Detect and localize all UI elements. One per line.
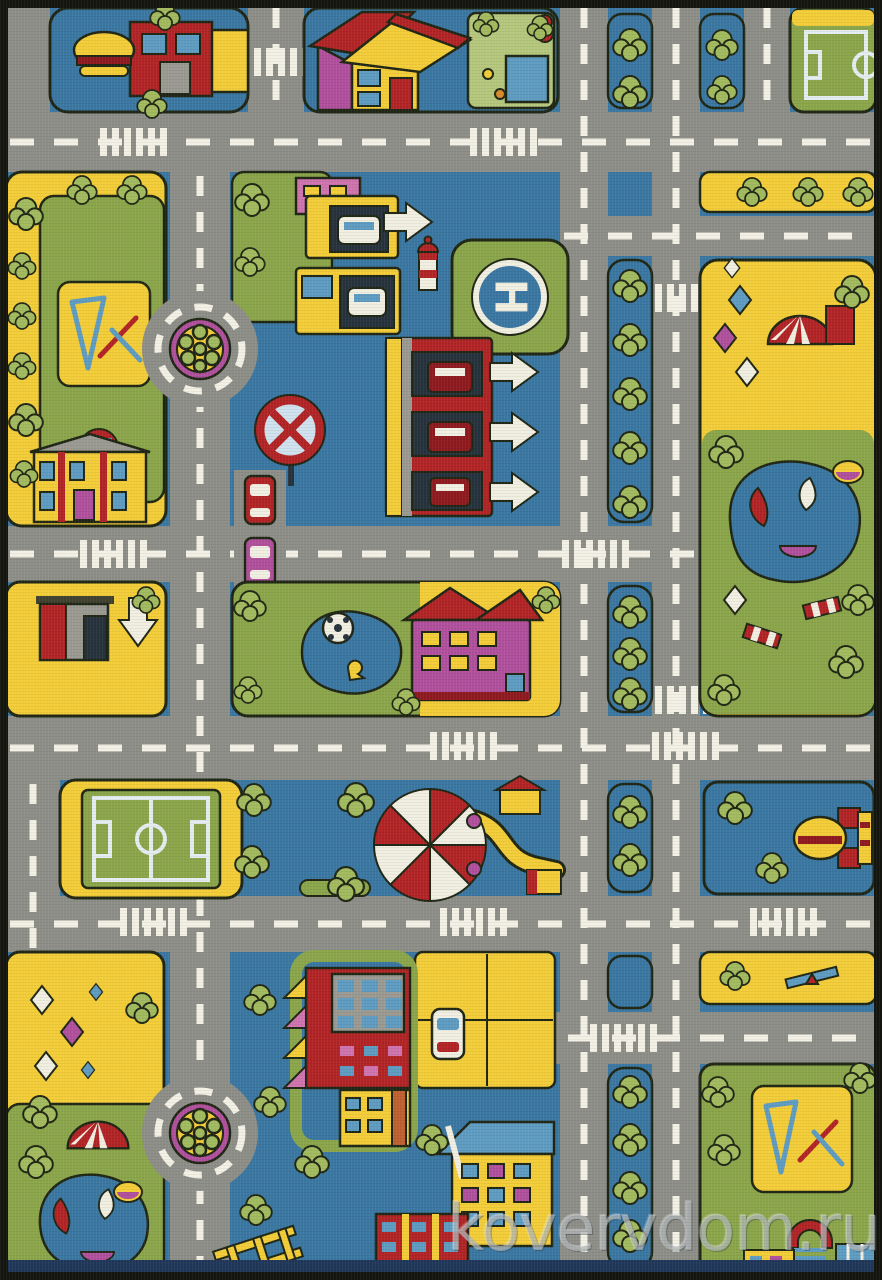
burger-sign (74, 32, 134, 76)
play-rug-illustration: H (0, 0, 882, 1280)
parked-car (432, 1009, 464, 1059)
shop-buildings (296, 178, 400, 334)
kindergarten-block (232, 582, 560, 716)
chicken (495, 89, 505, 99)
sailboat-pond-right (730, 461, 863, 582)
helipad-letter: H (485, 279, 536, 316)
rug-photo: H (0, 0, 882, 1280)
soccer-field-left (60, 780, 242, 898)
lighthouse (418, 237, 438, 291)
red-awning-building (284, 968, 410, 1088)
roundabout-bottom (142, 1075, 258, 1191)
swing-playground-right (752, 1086, 852, 1192)
soccer-field-top-right (790, 8, 878, 112)
house-with-garden (304, 8, 558, 112)
watermark: kovervdom.ru (447, 1192, 880, 1266)
swing-playground (58, 282, 150, 386)
garden-pond (506, 56, 548, 102)
sailboat-pond-bottom-left (40, 1175, 148, 1272)
yellow-lower-building (340, 1090, 410, 1146)
chicken (483, 69, 493, 79)
parking-garage (386, 338, 492, 516)
carousel-big-top (374, 789, 486, 901)
small-house (527, 870, 561, 894)
soccer-ball (323, 613, 353, 643)
direction-arrows (490, 353, 538, 511)
duck (348, 661, 364, 680)
kindergarten-building (404, 588, 542, 700)
roundabout-top (142, 291, 258, 407)
